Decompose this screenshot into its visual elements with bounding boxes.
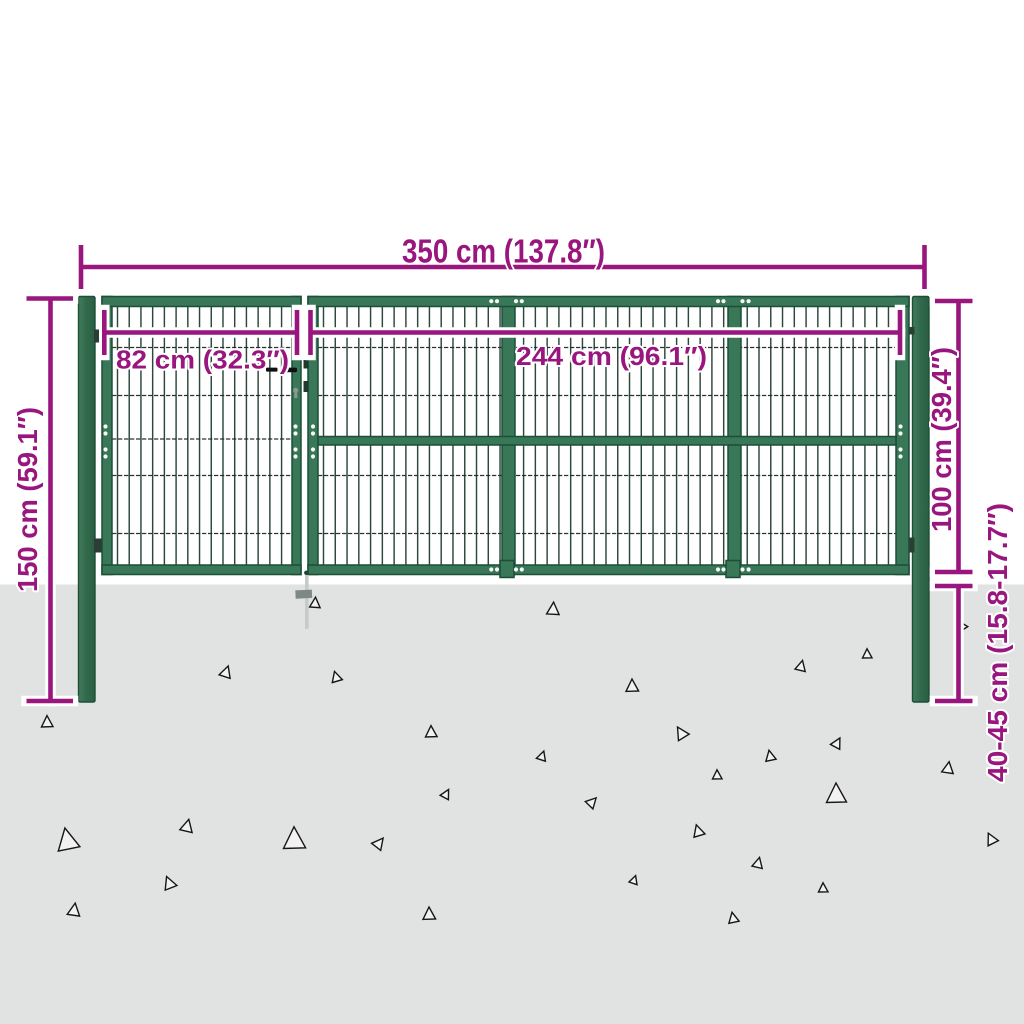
svg-text:82 cm (32.3″): 82 cm (32.3″) (116, 345, 289, 375)
svg-text:40-45 cm (15.8-17.7″): 40-45 cm (15.8-17.7″) (982, 503, 1013, 782)
svg-text:150 cm (59.1″): 150 cm (59.1″) (12, 407, 43, 592)
svg-text:244 cm (96.1″): 244 cm (96.1″) (516, 341, 707, 371)
svg-text:350 cm (137.8″): 350 cm (137.8″) (402, 233, 605, 270)
svg-text:100 cm (39.4″): 100 cm (39.4″) (926, 347, 957, 532)
